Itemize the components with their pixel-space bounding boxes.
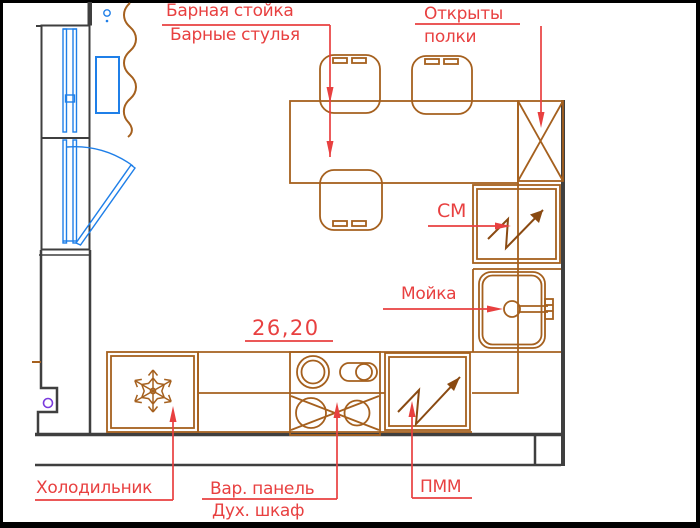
arrow-up-icon	[409, 401, 416, 417]
arrow-up-icon	[170, 406, 177, 422]
outlet-icon	[44, 399, 53, 408]
leader-washing-machine	[428, 223, 511, 230]
snowflake-icon	[133, 370, 174, 412]
window-frame-right	[73, 29, 77, 132]
label-open-shelves-1: Открыты	[424, 5, 503, 24]
label-sink: Мойка	[401, 285, 456, 304]
bar-counter	[290, 101, 518, 183]
door-leaf	[76, 165, 135, 245]
label-bar-stools: Барные стулья	[170, 26, 300, 45]
bar-stool-2	[412, 56, 472, 114]
window-frame-left	[63, 29, 67, 132]
walls	[35, 2, 565, 466]
drawing-frame	[0, 0, 700, 528]
dishwasher-zigzag-icon	[398, 377, 460, 424]
door-frame-right	[73, 140, 77, 243]
dishwasher-box	[385, 353, 470, 430]
radiator	[96, 57, 119, 113]
floor-plan: Барная стойка Барные стулья Открыты полк…	[0, 0, 700, 528]
label-oven: Дух. шкаф	[212, 502, 304, 521]
label-dimension: 26,20	[252, 317, 320, 340]
bar-stool-3	[320, 170, 382, 230]
label-hob: Вар. панель	[210, 480, 314, 499]
washing-machine-box	[473, 185, 560, 263]
furniture	[107, 55, 563, 435]
burner-rear-1	[296, 398, 326, 428]
window-door	[63, 10, 135, 245]
leader-sink	[383, 306, 503, 313]
wall-left-notched	[38, 250, 57, 434]
label-dishwasher: ПММ	[420, 478, 461, 497]
label-fridge: Холодильник	[36, 479, 152, 498]
curtain-line	[124, 3, 136, 137]
label-open-shelves-2: полки	[424, 28, 476, 47]
arrow-up-icon	[334, 402, 341, 418]
arrow-down-icon	[538, 112, 545, 128]
floor-plan-canvas	[0, 0, 700, 528]
label-bar-counter: Барная стойка	[166, 2, 294, 21]
label-washing-machine: СМ	[437, 201, 466, 222]
bar-stool-1	[320, 55, 380, 113]
arrow-down-icon	[327, 141, 334, 157]
ceiling-point-icon	[104, 10, 110, 16]
sink-faucet	[545, 299, 553, 319]
arrow-right-icon	[487, 306, 503, 313]
door-frame-left	[63, 140, 67, 243]
wall-top-left	[88, 2, 93, 26]
